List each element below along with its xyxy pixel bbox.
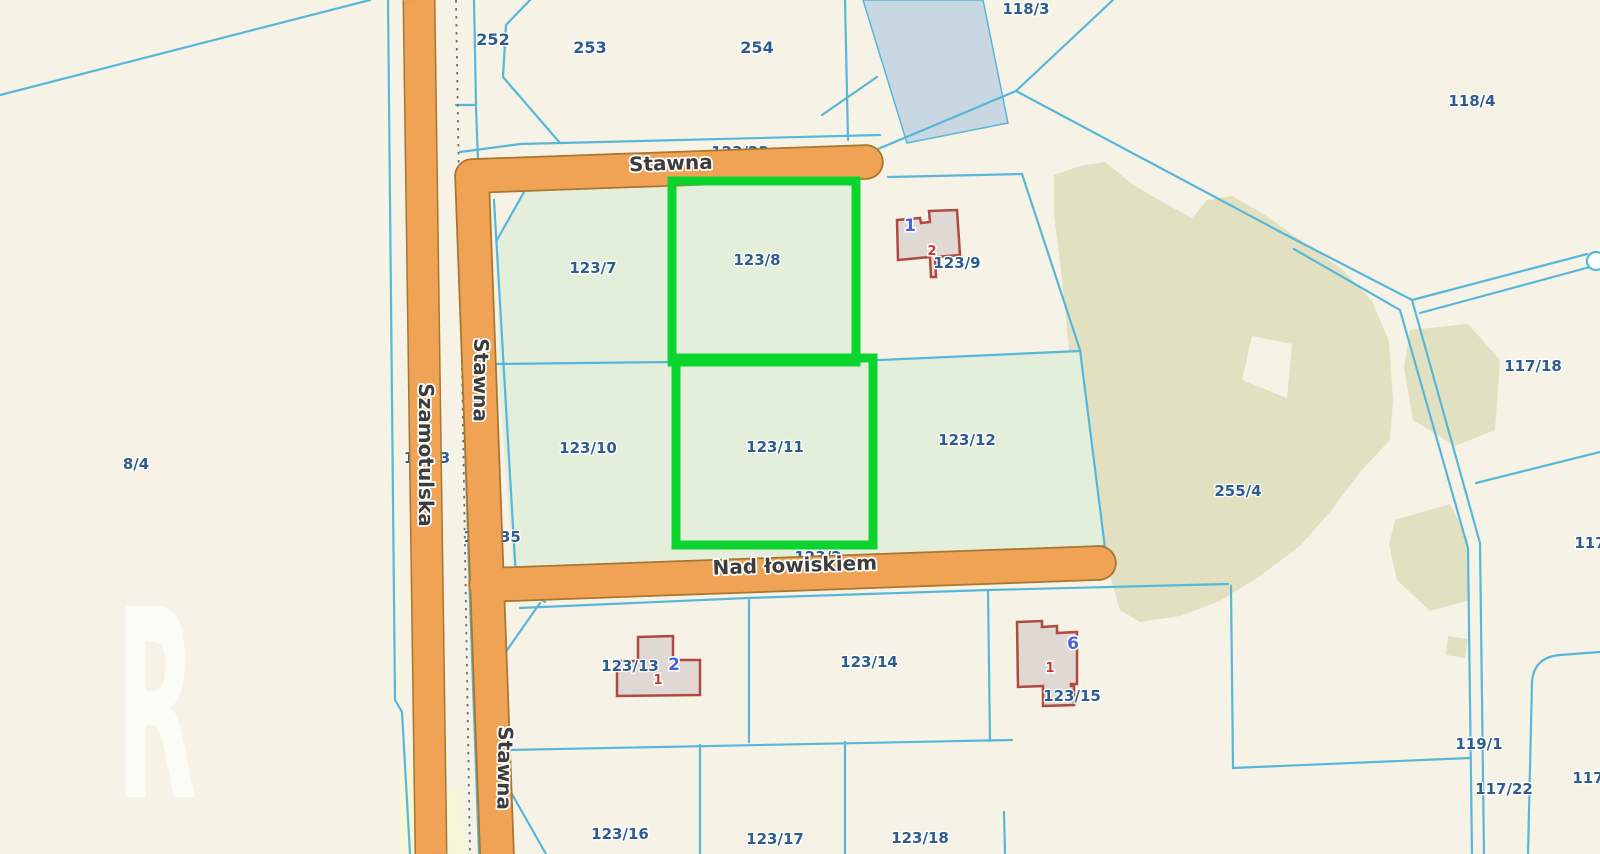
parcel-label-8-4: 8/4 <box>123 455 149 473</box>
parcel-label-119-1: 119/1 <box>1455 735 1502 753</box>
cadastral-map[interactable]: R <box>0 0 1600 854</box>
building-number-123-15: 1 <box>1045 661 1054 676</box>
watermark-letter: R <box>116 555 197 854</box>
parcel-label-123-14: 123/14 <box>840 653 898 671</box>
address-number-123-9: 1 <box>904 216 916 236</box>
parcel-label-118-3: 118/3 <box>1002 0 1049 18</box>
parcel-label-123-17: 123/17 <box>746 830 804 848</box>
parcel-label-255-4: 255/4 <box>1214 482 1261 500</box>
parcel-label-117-2-bottom: 117/2 <box>1572 769 1600 787</box>
parcel-label-123-10: 123/10 <box>559 439 617 457</box>
address-number-123-13: 2 <box>668 655 680 675</box>
road-label-stawna-horizontal: Stawna <box>629 150 713 177</box>
parcel-label-123-12: 123/12 <box>938 431 996 449</box>
parcel-label-123-8: 123/8 <box>733 251 780 269</box>
address-number-123-15: 6 <box>1067 634 1079 654</box>
road-label-stawna-vertical-upper: Stawna <box>469 338 494 422</box>
parcel-label-123-11: 123/11 <box>746 438 804 456</box>
parcel-label-252: 252 <box>476 30 509 49</box>
building-number-123-13: 1 <box>653 673 662 688</box>
map-canvas: R <box>0 0 1600 854</box>
road-label-stawna-vertical-lower: Stawna <box>492 726 517 810</box>
parcel-label-253: 253 <box>573 38 606 57</box>
parcel-label-123-16: 123/16 <box>591 825 649 843</box>
parcel-label-117-22: 117/22 <box>1475 780 1533 798</box>
boundary-marker-circle <box>1587 252 1600 270</box>
parcel-label-123-9: 123/9 <box>933 254 980 272</box>
parcel-label-117-18: 117/18 <box>1504 357 1562 375</box>
parcel-label-123-7: 123/7 <box>569 259 616 277</box>
vegetation-patch-small <box>1446 636 1468 658</box>
parcel-label-123-18: 123/18 <box>891 829 949 847</box>
road-label-szamotulska: Szamotulska <box>414 383 438 526</box>
parcel-label-118-4: 118/4 <box>1448 92 1495 110</box>
parcel-label-254: 254 <box>740 38 773 57</box>
parcel-label-117-2-mid: 117/2 <box>1574 534 1600 552</box>
parcel-label-123-15: 123/15 <box>1043 687 1101 705</box>
parcel-label-123-13: 123/13 <box>601 657 659 675</box>
